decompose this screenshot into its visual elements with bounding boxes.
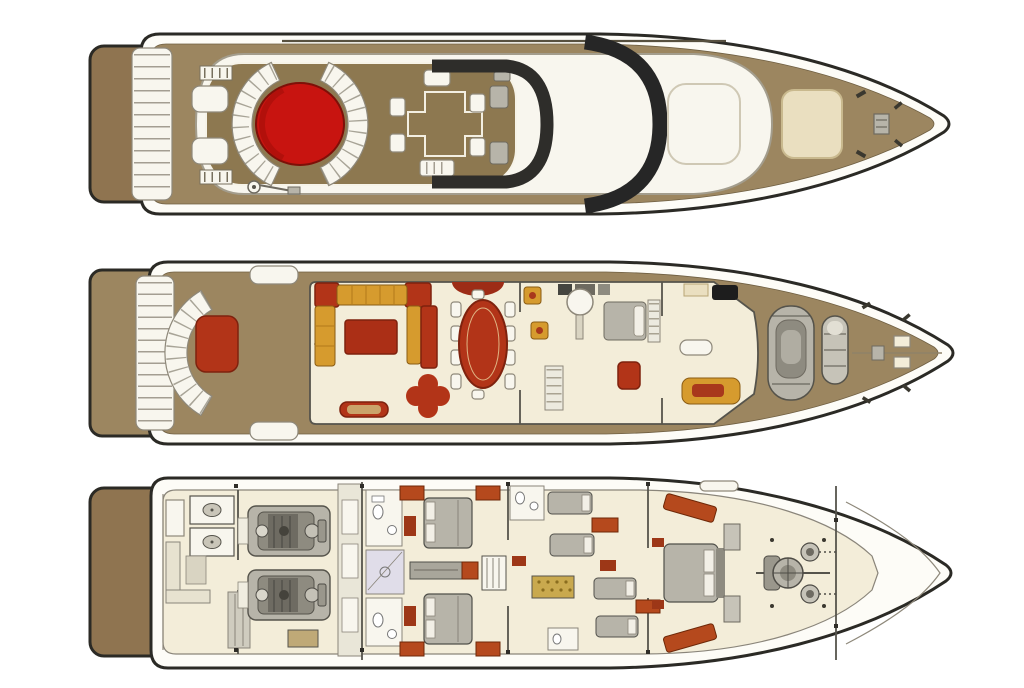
generator bbox=[288, 630, 318, 647]
wardrobe bbox=[600, 560, 616, 571]
vip-seat bbox=[724, 596, 740, 622]
double-bed-port bbox=[424, 498, 472, 548]
helm-pod-port bbox=[490, 86, 508, 108]
sofa-back bbox=[337, 285, 407, 305]
deck-plan-drawing bbox=[0, 0, 1024, 688]
washer bbox=[190, 496, 234, 524]
pillow bbox=[704, 550, 714, 572]
stern-steps bbox=[132, 48, 172, 200]
central-dresser bbox=[410, 562, 478, 579]
nightstand bbox=[400, 486, 424, 500]
tender-raft bbox=[822, 316, 848, 384]
vip-bed bbox=[664, 544, 725, 602]
pilothouse-bench bbox=[682, 378, 740, 404]
galley-appliance bbox=[598, 284, 610, 295]
bathroom-port bbox=[366, 490, 402, 546]
coffee-table bbox=[345, 320, 397, 354]
pillow bbox=[704, 574, 714, 596]
console-box bbox=[494, 72, 510, 81]
crew-sofa bbox=[166, 542, 180, 594]
sofa-corner-starboard bbox=[405, 283, 431, 307]
companionway-steps bbox=[482, 556, 506, 590]
yacht-deck-plan bbox=[0, 0, 1024, 688]
dining-oval-table bbox=[459, 300, 507, 388]
gearbox bbox=[238, 518, 248, 544]
sofa-corner-port bbox=[315, 283, 339, 307]
nightstand bbox=[476, 486, 500, 500]
dining-chair bbox=[472, 290, 484, 299]
dining-chair bbox=[451, 302, 461, 317]
wardrobe bbox=[512, 556, 526, 566]
bathroom-starboard bbox=[366, 598, 402, 646]
twin-bed bbox=[594, 578, 636, 599]
dining-chair bbox=[472, 390, 484, 399]
berth-pillow bbox=[634, 306, 644, 336]
vip-cabinet bbox=[652, 538, 664, 547]
guest-bathroom-starboard bbox=[548, 628, 578, 650]
chart-counter bbox=[680, 340, 712, 355]
crew-sofa bbox=[166, 590, 210, 603]
technical-corridor bbox=[338, 484, 362, 656]
side-door bbox=[684, 284, 708, 296]
deck-flybridge bbox=[90, 34, 949, 214]
vip-cabinet bbox=[652, 600, 664, 609]
seat-pad bbox=[390, 134, 405, 152]
aft-table bbox=[196, 316, 238, 372]
boarding-gate-port bbox=[250, 266, 298, 284]
wardrobe bbox=[404, 516, 416, 536]
companionway-stairs-down bbox=[545, 366, 563, 410]
sofa-arm-port bbox=[315, 306, 335, 366]
flybridge-bench bbox=[420, 160, 454, 176]
jetski bbox=[768, 306, 814, 400]
companionway-stairs-up bbox=[648, 300, 660, 342]
washer bbox=[190, 528, 234, 556]
seat-pad bbox=[390, 98, 405, 116]
starboard-engine bbox=[248, 570, 330, 620]
double-bed-starboard bbox=[424, 594, 472, 644]
gearbox bbox=[238, 582, 248, 608]
twin-bed bbox=[596, 616, 638, 637]
crew-bunk bbox=[166, 500, 184, 536]
shower bbox=[366, 550, 404, 594]
twin-bed bbox=[548, 492, 592, 514]
deck-main bbox=[90, 262, 953, 444]
headboard bbox=[716, 548, 725, 598]
nightstand bbox=[592, 518, 618, 532]
salon-bench bbox=[340, 402, 388, 417]
port-engine bbox=[248, 506, 330, 556]
seat-pad bbox=[470, 138, 485, 156]
corner-seat-starboard bbox=[192, 138, 228, 164]
dining-chair bbox=[505, 374, 515, 389]
guest-bathroom bbox=[510, 486, 544, 520]
boarding-gate-starboard bbox=[250, 422, 298, 440]
bow-hatch bbox=[894, 357, 910, 368]
helm-pod-starboard bbox=[490, 142, 508, 164]
bow-hatch bbox=[894, 336, 910, 347]
anchor-windlass bbox=[874, 114, 889, 134]
helm-console bbox=[712, 285, 738, 300]
deck-vent-starboard bbox=[200, 170, 232, 184]
twin-bed bbox=[550, 534, 594, 556]
nightstand bbox=[476, 642, 500, 656]
vip-seat bbox=[724, 524, 740, 550]
dining-chair bbox=[505, 302, 515, 317]
deck-lower bbox=[90, 478, 951, 668]
sofa-arm-starboard bbox=[407, 306, 421, 364]
deck-hatch bbox=[700, 481, 738, 491]
jacuzzi bbox=[256, 83, 344, 165]
galley-round-table bbox=[567, 289, 593, 315]
windlass bbox=[872, 346, 884, 360]
gold-tile-shower bbox=[532, 576, 574, 598]
bow-sunpad bbox=[782, 90, 842, 158]
dining-chair bbox=[451, 374, 461, 389]
deck-vent-port bbox=[200, 66, 232, 80]
helm-seat bbox=[618, 362, 640, 389]
dining-area bbox=[451, 290, 515, 399]
crew-table bbox=[186, 556, 206, 584]
seat-pad bbox=[470, 94, 485, 112]
table-pedestal bbox=[576, 315, 583, 339]
sofa-chaise bbox=[421, 306, 437, 368]
wardrobe bbox=[404, 606, 416, 626]
nightstand bbox=[400, 642, 424, 656]
corner-seat-port bbox=[192, 86, 228, 112]
